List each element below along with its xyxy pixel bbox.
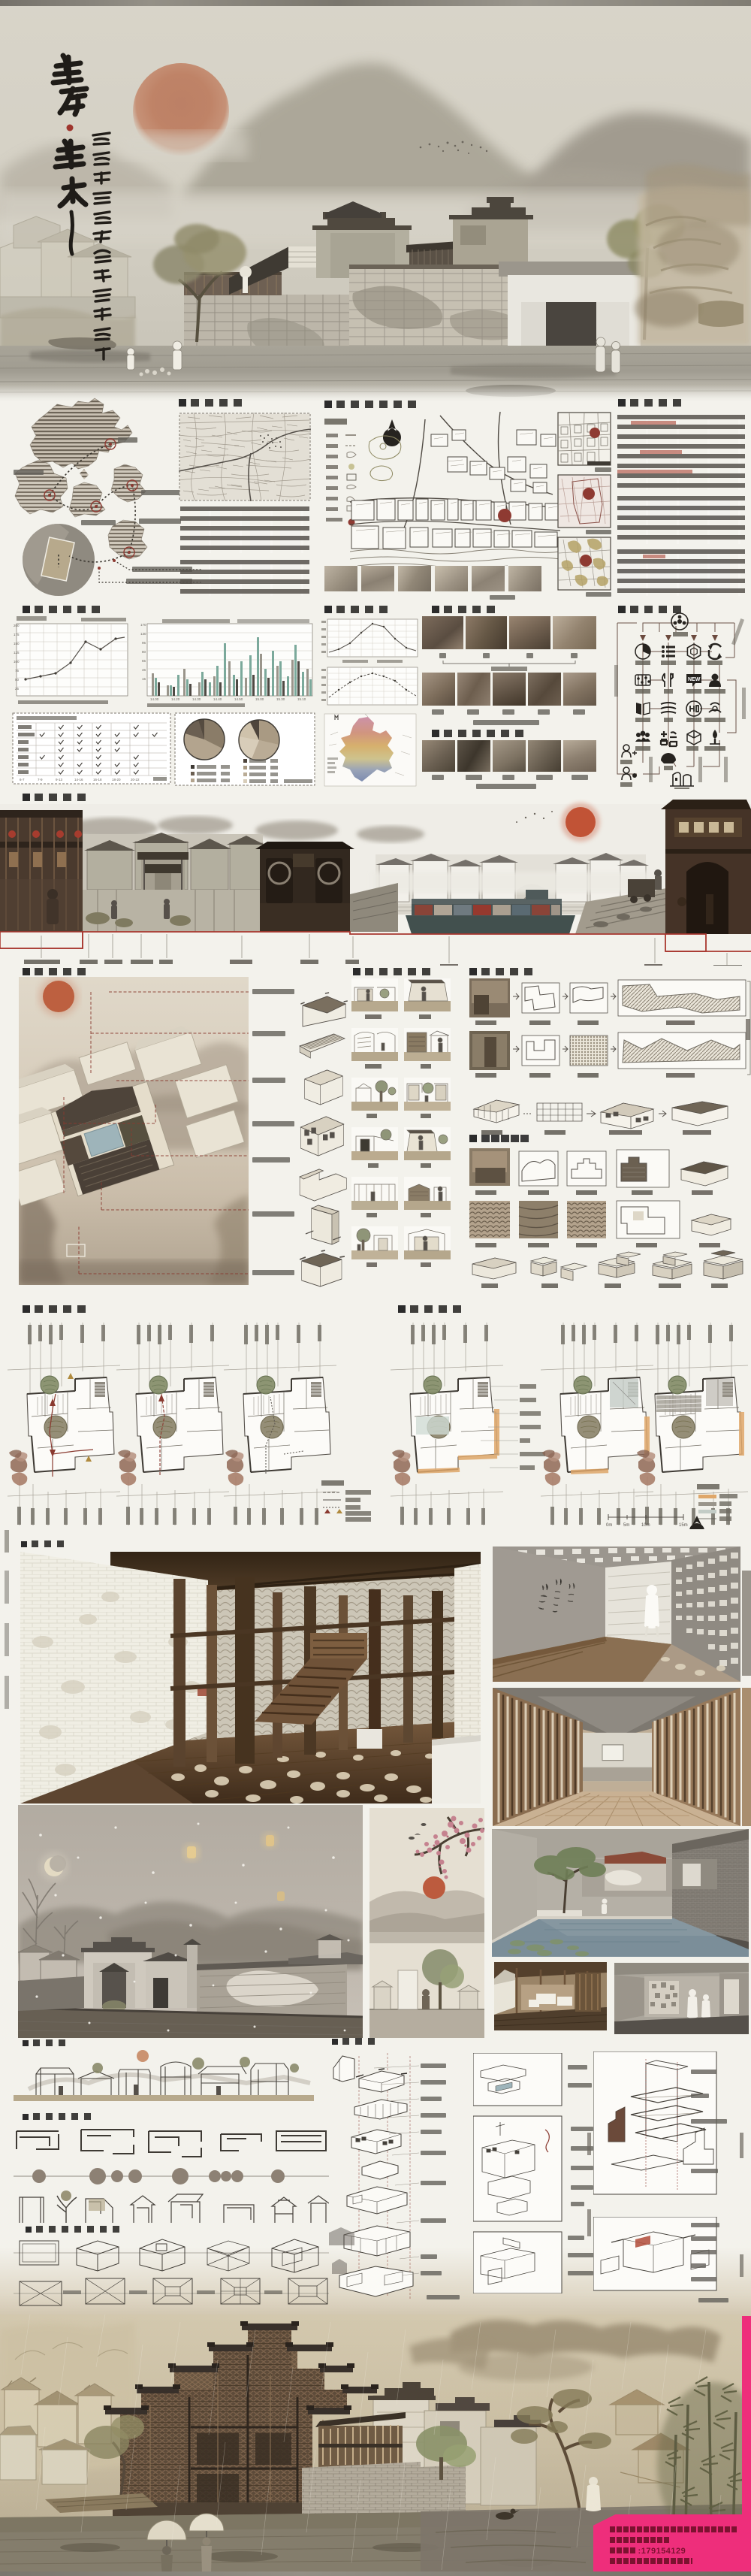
svg-text:20-22: 20-22 xyxy=(131,778,140,782)
svg-text:125: 125 xyxy=(14,651,20,655)
svg-text:16-18: 16-18 xyxy=(93,778,102,782)
svg-text:15.00: 15.00 xyxy=(255,697,264,701)
svg-text:14.50: 14.50 xyxy=(234,697,243,701)
svg-text:100: 100 xyxy=(14,660,20,664)
svg-text:130: 130 xyxy=(140,632,146,636)
svg-text:75: 75 xyxy=(15,669,20,673)
svg-text:15.30: 15.30 xyxy=(276,697,285,701)
svg-text:170: 170 xyxy=(140,623,146,627)
svg-text:9-13: 9-13 xyxy=(56,778,63,782)
svg-text:7-9: 7-9 xyxy=(38,778,43,782)
svg-text:200: 200 xyxy=(14,624,20,627)
svg-text:6-7: 6-7 xyxy=(20,778,25,782)
svg-text:150: 150 xyxy=(14,642,20,646)
svg-text:175: 175 xyxy=(14,633,20,636)
svg-text:15: 15 xyxy=(142,677,146,681)
svg-text:15m: 15m xyxy=(679,1523,688,1528)
svg-text:10m: 10m xyxy=(641,1523,650,1528)
svg-text:15.10: 15.10 xyxy=(297,697,306,701)
svg-text:5m: 5m xyxy=(623,1523,629,1528)
svg-text:14.30: 14.30 xyxy=(192,697,201,701)
svg-text:80: 80 xyxy=(142,650,146,654)
svg-text:0m: 0m xyxy=(606,1523,612,1528)
svg-text:14.00: 14.00 xyxy=(150,697,159,701)
svg-text:95: 95 xyxy=(142,641,146,645)
svg-text:50: 50 xyxy=(15,678,20,682)
svg-text:14.40: 14.40 xyxy=(213,697,222,701)
svg-text:25: 25 xyxy=(15,687,20,691)
svg-text:18-20: 18-20 xyxy=(112,778,121,782)
svg-text:46: 46 xyxy=(142,668,146,672)
svg-text:14-16: 14-16 xyxy=(74,778,83,782)
svg-text:NEW: NEW xyxy=(688,677,701,682)
svg-text:14.20: 14.20 xyxy=(171,697,180,701)
svg-text:65: 65 xyxy=(142,659,146,663)
